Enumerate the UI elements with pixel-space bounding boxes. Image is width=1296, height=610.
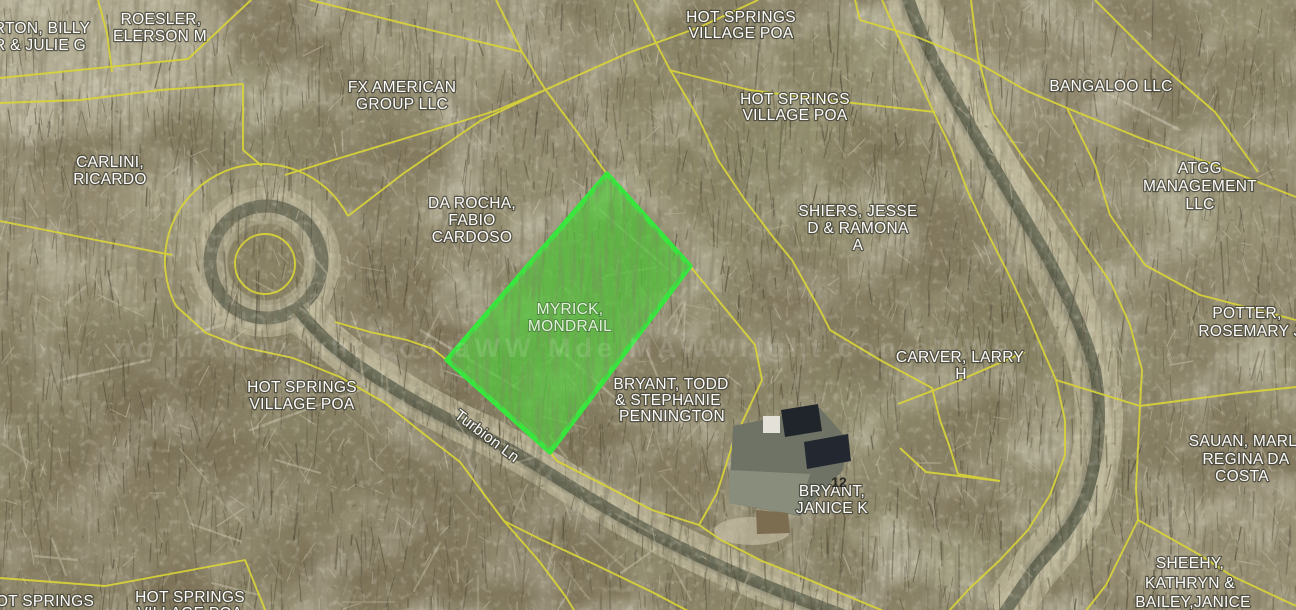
svg-text:BANGALOO LLC: BANGALOO LLC (1049, 78, 1172, 95)
svg-text:VILLAGE POA: VILLAGE POA (689, 25, 794, 42)
svg-text:nd MAWWrlght con aWW Mde MAWWr: nd MAWWrlght con aWW Mde MAWWrlght con a… (115, 333, 1014, 363)
svg-text:CARLINI,: CARLINI, (76, 154, 144, 171)
svg-text:BRYANT, TODD: BRYANT, TODD (613, 376, 728, 393)
svg-text:HOT SPRINGS: HOT SPRINGS (135, 589, 245, 606)
svg-text:HOT SPRINGS: HOT SPRINGS (247, 379, 357, 396)
svg-text:BAILEY,JANICE: BAILEY,JANICE (1135, 594, 1251, 610)
svg-text:KATHRYN &: KATHRYN & (1145, 575, 1235, 592)
svg-text:POTTER,: POTTER, (1212, 305, 1281, 322)
svg-text:VILLAGE POA: VILLAGE POA (743, 107, 848, 124)
svg-text:H: H (955, 366, 967, 383)
svg-text:ROESLER,: ROESLER, (121, 11, 202, 28)
svg-text:JANICE K: JANICE K (796, 500, 869, 517)
svg-text:SHEEHY,: SHEEHY, (1156, 555, 1224, 572)
svg-text:HOT SPRINGS: HOT SPRINGS (740, 91, 850, 108)
svg-text:FX AMERICAN: FX AMERICAN (348, 79, 456, 96)
svg-text:LLC: LLC (1185, 196, 1214, 213)
svg-text:A: A (853, 237, 864, 254)
svg-text:SHIERS, JESSE: SHIERS, JESSE (798, 203, 917, 220)
svg-text:ATGG: ATGG (1178, 160, 1222, 177)
svg-text:CARVER, LARRY: CARVER, LARRY (896, 349, 1024, 366)
svg-text:FABIO: FABIO (448, 212, 495, 229)
svg-text:MONDRAIL: MONDRAIL (528, 318, 612, 335)
svg-text:COSTA: COSTA (1215, 468, 1269, 485)
svg-text:MYRICK,: MYRICK, (537, 301, 604, 318)
svg-text:ELERSON M: ELERSON M (113, 28, 207, 45)
svg-text:ROSEMARY J: ROSEMARY J (1198, 323, 1296, 340)
svg-text:RICARDO: RICARDO (73, 171, 147, 188)
svg-text:VILLAGE POA: VILLAGE POA (138, 605, 243, 610)
svg-text:PENNINGTON: PENNINGTON (619, 408, 725, 425)
svg-text:MANAGEMENT: MANAGEMENT (1143, 178, 1257, 195)
svg-text:12: 12 (831, 474, 847, 490)
svg-text:HOT SPRINGS: HOT SPRINGS (686, 9, 796, 26)
svg-text:DA ROCHA,: DA ROCHA, (428, 195, 516, 212)
svg-text:& STEPHANIE: & STEPHANIE (615, 392, 721, 409)
svg-text:REGINA DA: REGINA DA (1202, 451, 1289, 468)
svg-text:R & JULIE G: R & JULIE G (0, 37, 86, 54)
svg-text:SAUAN, MARL: SAUAN, MARL (1189, 433, 1296, 450)
svg-text:CARDOSO: CARDOSO (432, 229, 512, 246)
svg-text:RTON, BILLY: RTON, BILLY (0, 20, 90, 37)
svg-text:VILLAGE POA: VILLAGE POA (250, 396, 355, 413)
svg-text:D & RAMONA: D & RAMONA (807, 220, 909, 237)
svg-text:GROUP LLC: GROUP LLC (356, 96, 448, 113)
svg-text:OT SPRINGS: OT SPRINGS (0, 593, 94, 610)
